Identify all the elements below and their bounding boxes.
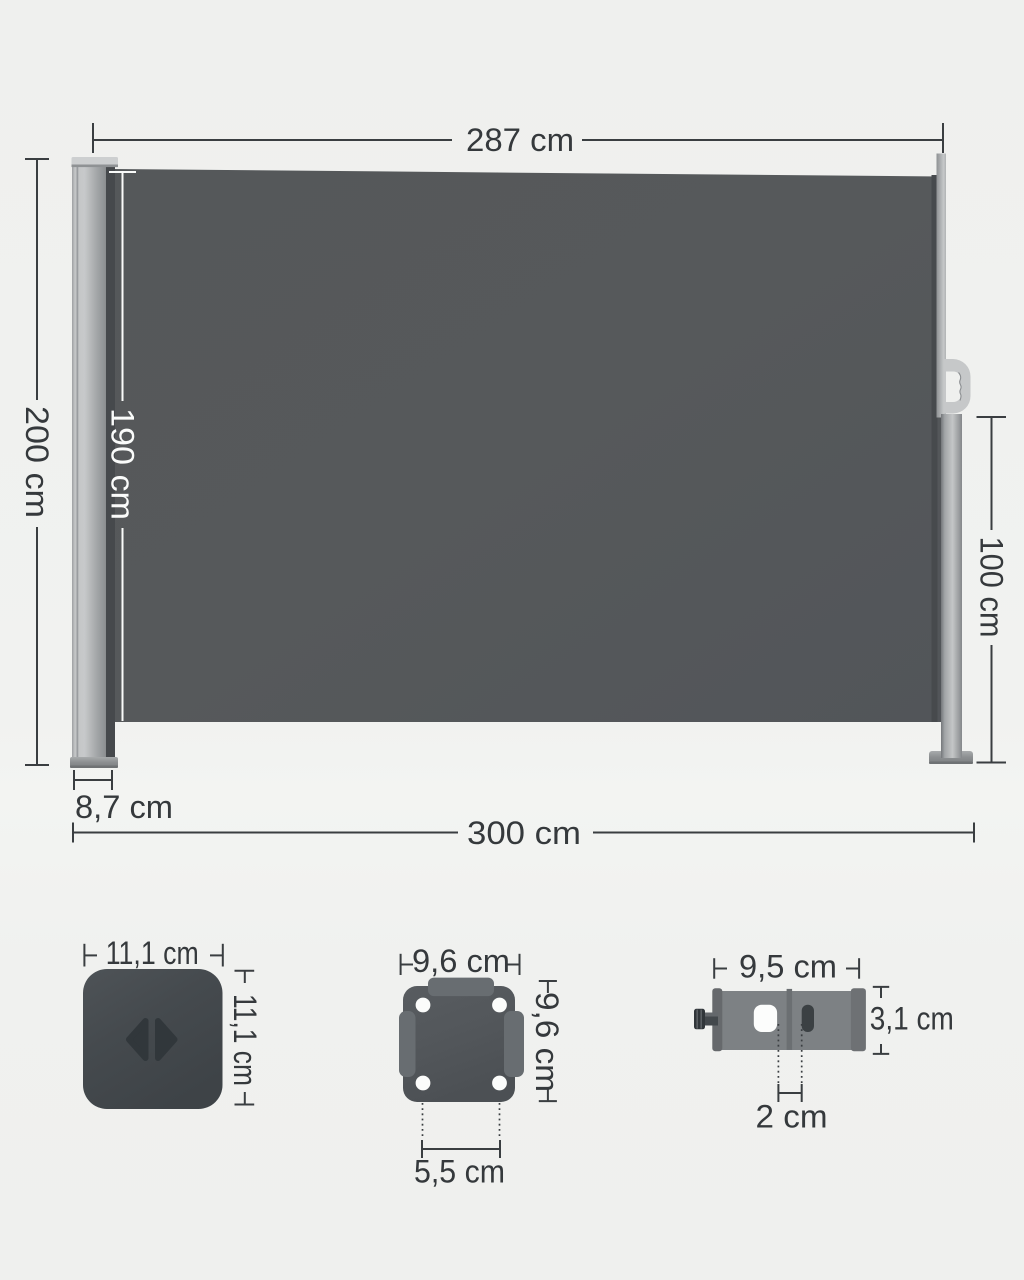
- svg-text:2 cm: 2 cm: [756, 1099, 828, 1135]
- svg-text:190 cm: 190 cm: [105, 408, 141, 520]
- svg-text:9,6 cm: 9,6 cm: [412, 943, 510, 979]
- svg-text:300 cm: 300 cm: [467, 815, 581, 851]
- svg-text:3,1 cm: 3,1 cm: [870, 1000, 954, 1036]
- svg-text:8,7 cm: 8,7 cm: [75, 789, 173, 825]
- svg-text:287 cm: 287 cm: [466, 122, 574, 158]
- svg-text:5,5 cm: 5,5 cm: [414, 1154, 505, 1190]
- svg-text:11,1 cm: 11,1 cm: [106, 935, 199, 971]
- svg-text:100 cm: 100 cm: [974, 537, 1010, 638]
- svg-text:200 cm: 200 cm: [19, 406, 55, 518]
- svg-text:9,5 cm: 9,5 cm: [739, 948, 837, 984]
- svg-text:9,6 cm: 9,6 cm: [529, 992, 565, 1092]
- svg-text:11,1 cm: 11,1 cm: [227, 994, 263, 1086]
